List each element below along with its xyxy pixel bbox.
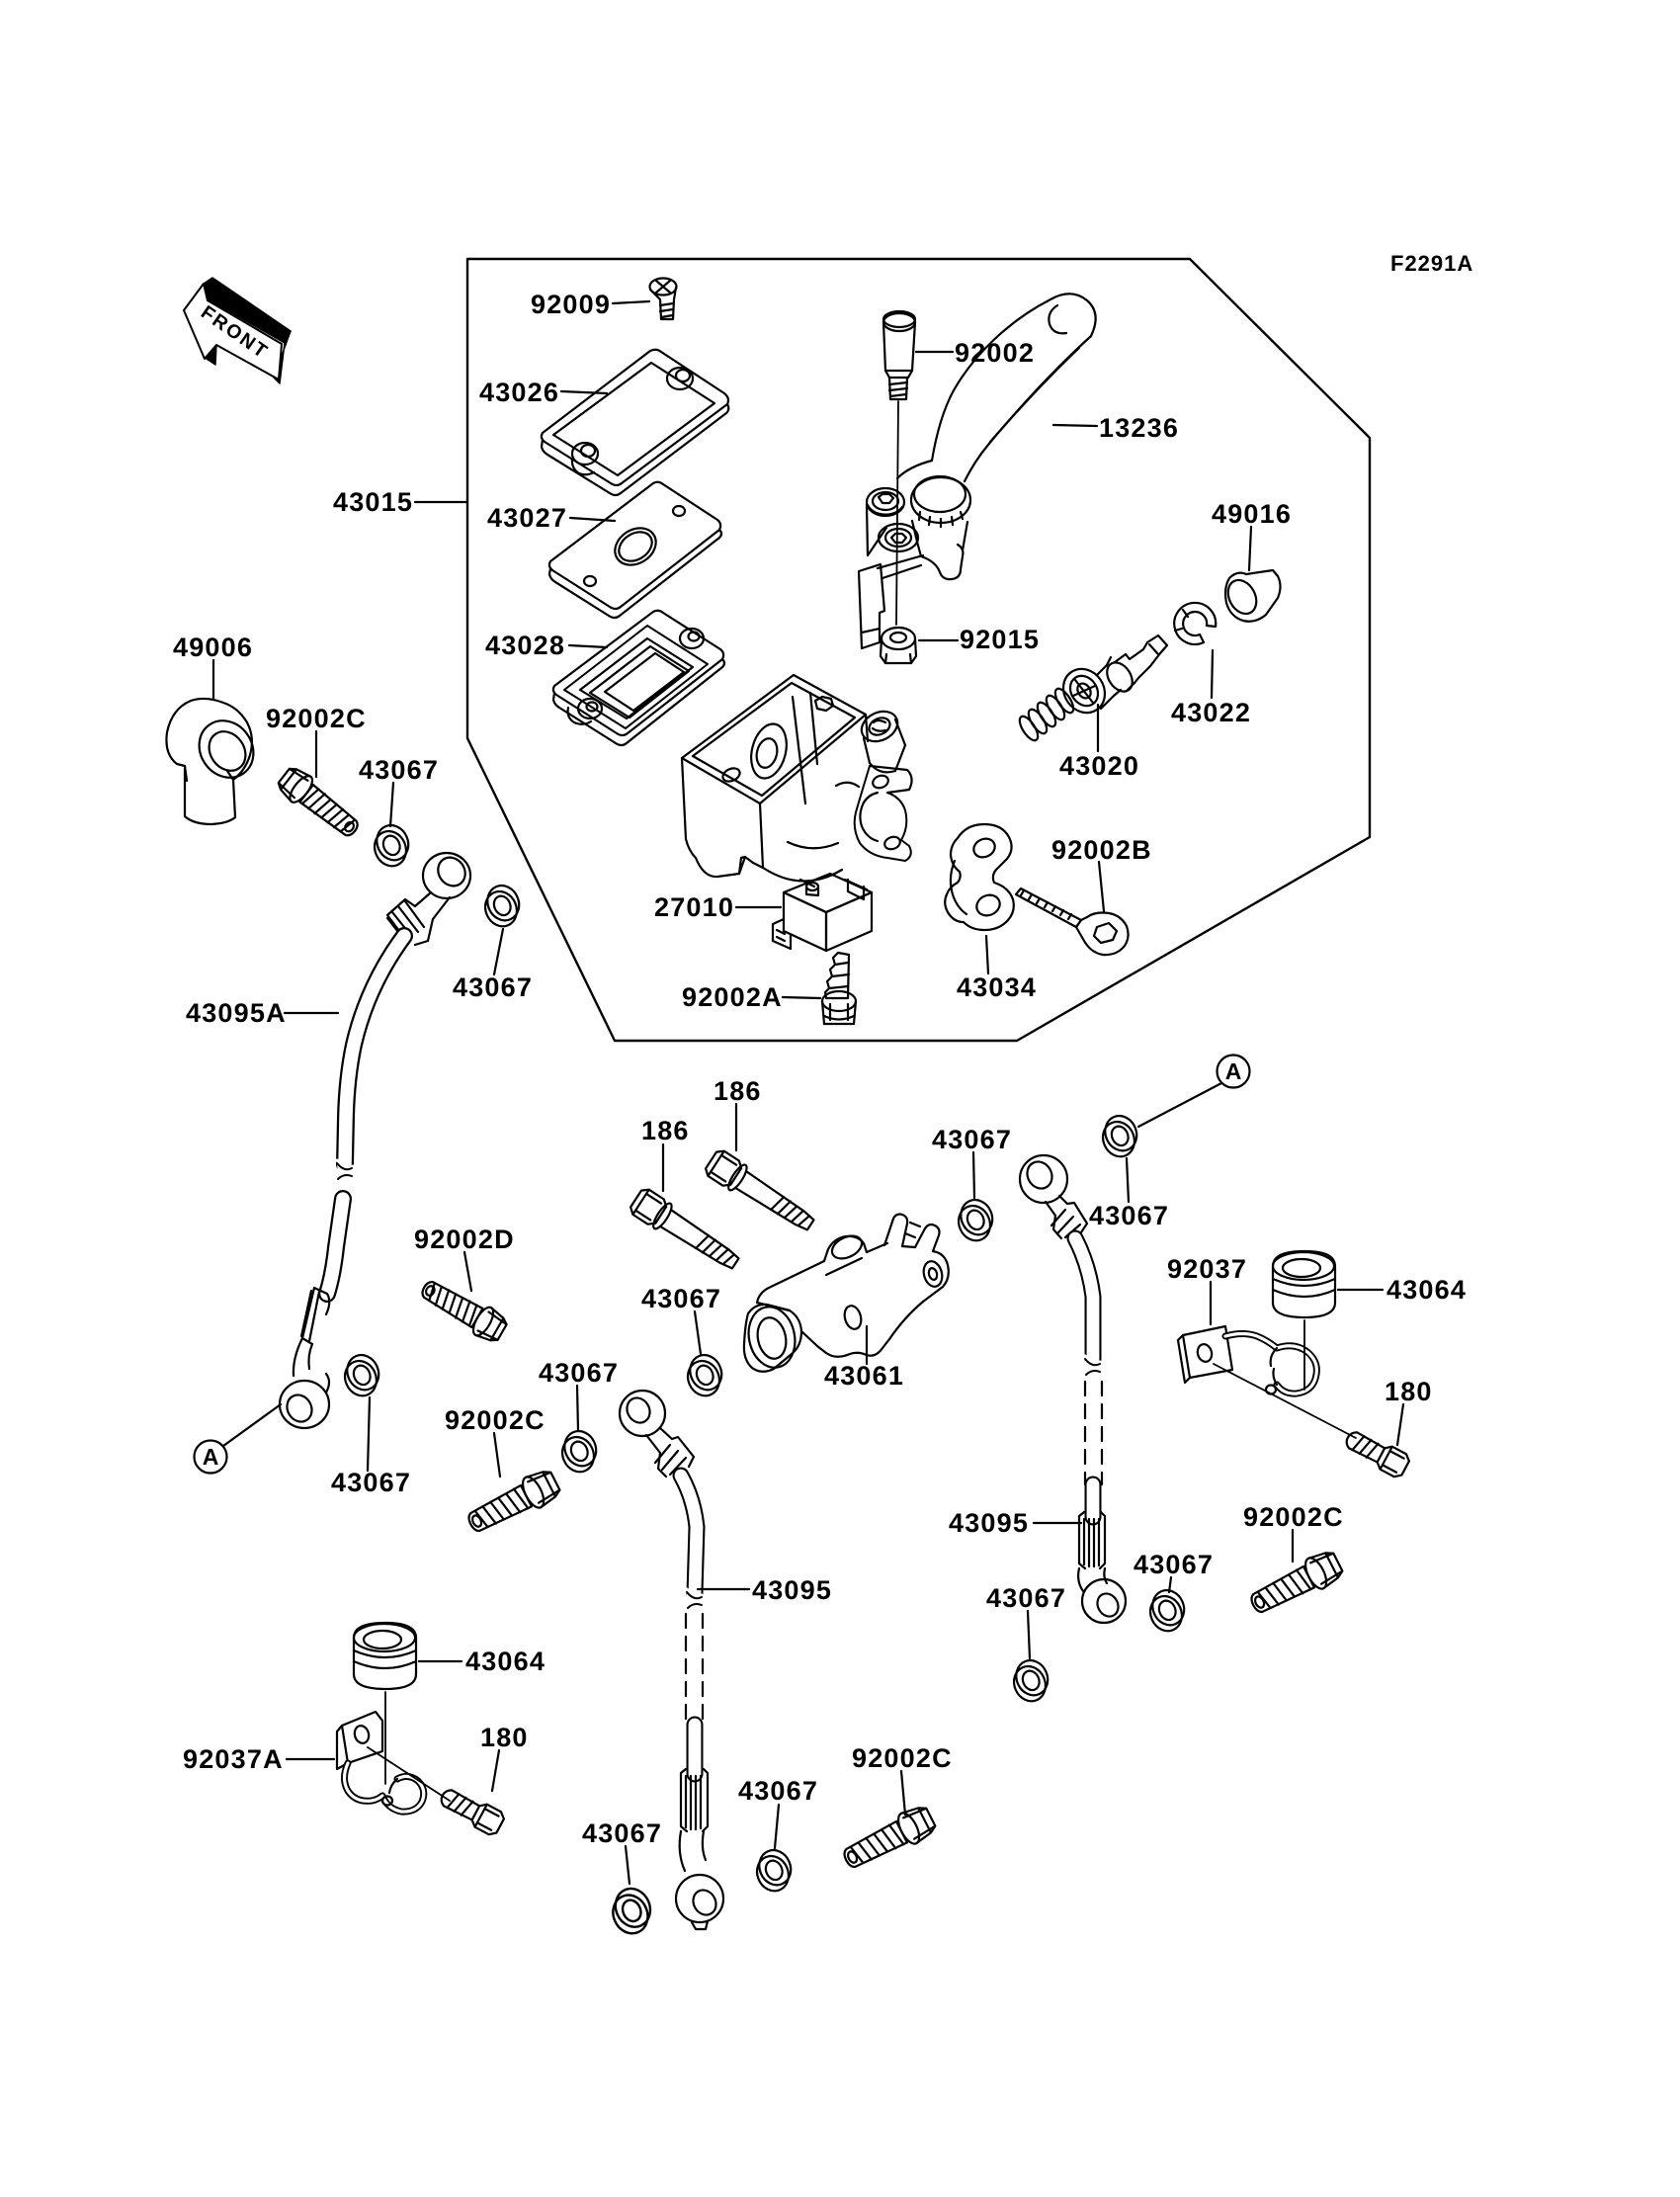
svg-text:43067: 43067 [539,1358,619,1388]
svg-text:43095A: 43095A [186,998,287,1028]
svg-text:92002: 92002 [955,338,1035,368]
svg-text:43095: 43095 [752,1575,832,1605]
svg-text:43034: 43034 [957,972,1037,1002]
svg-text:43028: 43028 [485,631,565,660]
svg-text:92015: 92015 [960,625,1040,654]
svg-text:27010: 27010 [654,892,734,922]
svg-text:F2291A: F2291A [1390,251,1473,276]
svg-text:A: A [203,1444,219,1470]
svg-text:43067: 43067 [738,1776,818,1806]
svg-text:43067: 43067 [932,1125,1012,1154]
svg-text:43067: 43067 [331,1468,411,1497]
svg-text:92002D: 92002D [414,1225,515,1254]
svg-text:186: 186 [641,1116,690,1145]
svg-text:186: 186 [714,1076,762,1106]
svg-text:43067: 43067 [1089,1201,1169,1230]
svg-text:13236: 13236 [1099,413,1179,443]
svg-text:92037: 92037 [1167,1254,1247,1284]
svg-text:43015: 43015 [333,487,413,517]
svg-text:92002C: 92002C [852,1743,953,1773]
svg-text:43095: 43095 [949,1508,1029,1538]
svg-text:43020: 43020 [1059,751,1139,781]
svg-text:92002B: 92002B [1051,835,1152,865]
svg-text:43067: 43067 [1134,1550,1214,1579]
svg-text:43064: 43064 [465,1647,546,1676]
svg-text:43061: 43061 [824,1361,904,1391]
svg-text:43027: 43027 [487,503,567,533]
svg-text:43067: 43067 [641,1284,721,1313]
svg-text:92002C: 92002C [266,704,367,733]
svg-text:43067: 43067 [359,755,439,785]
svg-text:180: 180 [1385,1377,1433,1406]
svg-text:92002C: 92002C [1243,1502,1344,1532]
svg-text:43067: 43067 [582,1818,662,1848]
svg-text:43064: 43064 [1386,1275,1467,1305]
svg-text:92037A: 92037A [183,1744,284,1774]
svg-text:92002C: 92002C [445,1405,546,1435]
svg-text:180: 180 [480,1723,529,1752]
svg-text:49006: 49006 [173,633,253,662]
svg-text:92009: 92009 [531,290,611,319]
svg-text:43067: 43067 [453,972,533,1002]
svg-text:49016: 49016 [1212,499,1292,529]
svg-text:43026: 43026 [479,378,559,407]
svg-text:43067: 43067 [986,1583,1066,1613]
svg-text:92002A: 92002A [682,982,783,1012]
svg-text:43022: 43022 [1171,698,1251,727]
svg-text:A: A [1225,1058,1242,1084]
